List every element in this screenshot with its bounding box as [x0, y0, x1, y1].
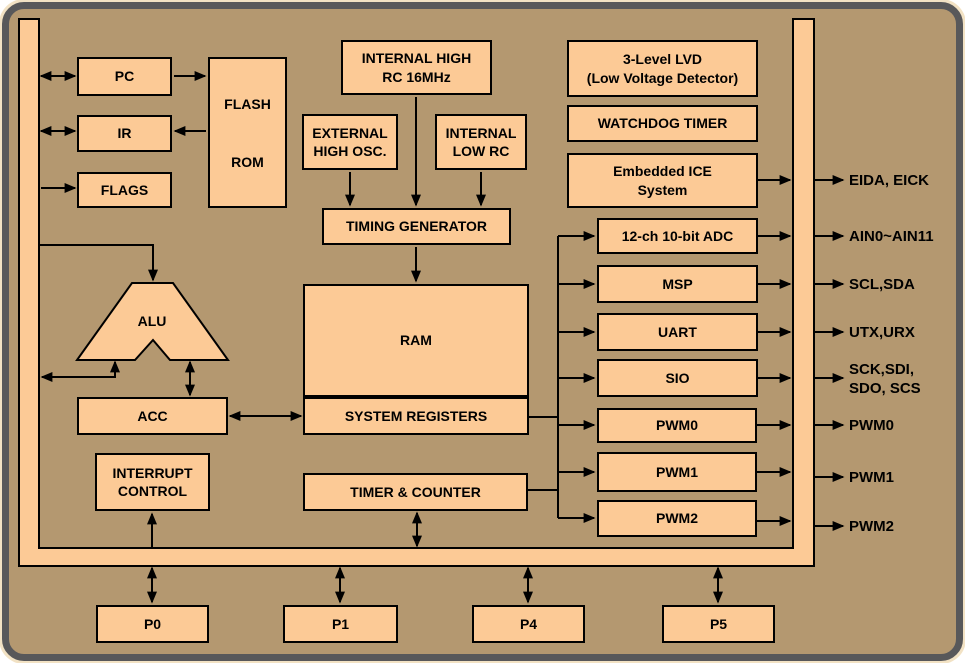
- pin-label-pwm1: PWM1: [849, 468, 894, 487]
- block-ram: RAM: [303, 284, 529, 397]
- block-system-registers: SYSTEM REGISTERS: [303, 397, 529, 435]
- block-watchdog-timer: WATCHDOG TIMER: [567, 105, 758, 142]
- pin-label-utx-urx: UTX,URX: [849, 323, 915, 342]
- block-flags: FLAGS: [77, 172, 172, 208]
- block-pwm1: PWM1: [597, 452, 757, 492]
- block-msp: MSP: [597, 265, 758, 303]
- block-internal-low-rc: INTERNAL LOW RC: [435, 114, 527, 170]
- block-interrupt-control: INTERRUPT CONTROL: [95, 453, 210, 511]
- alu-label: ALU: [117, 313, 187, 329]
- block-lvd: 3-Level LVD (Low Voltage Detector): [567, 40, 758, 97]
- block-adc: 12-ch 10-bit ADC: [597, 218, 758, 254]
- block-embedded-ice: Embedded ICE System: [567, 153, 758, 208]
- pin-label-pwm2: PWM2: [849, 517, 894, 536]
- block-pc: PC: [77, 57, 172, 96]
- block-internal-high-rc: INTERNAL HIGH RC 16MHz: [341, 40, 492, 95]
- pin-label-scl-sda: SCL,SDA: [849, 275, 915, 294]
- block-diagram: PC IR FLAGS FLASH ROM INTERNAL HIGH RC 1…: [0, 0, 965, 663]
- block-port-p0: P0: [96, 605, 209, 643]
- block-flash-rom: FLASH ROM: [208, 57, 287, 208]
- block-ir: IR: [77, 115, 172, 152]
- block-acc: ACC: [77, 397, 228, 435]
- pin-label-ain0-ain11: AIN0~AIN11: [849, 227, 934, 246]
- block-pwm0: PWM0: [597, 408, 757, 443]
- pin-label-sck-sdi-sdo-scs: SCK,SDI, SDO, SCS: [849, 360, 921, 398]
- block-uart: UART: [597, 313, 758, 351]
- pin-label-pwm0: PWM0: [849, 416, 894, 435]
- pin-label-eida-eick: EIDA, EICK: [849, 171, 929, 190]
- block-port-p1: P1: [283, 605, 398, 643]
- block-port-p4: P4: [472, 605, 585, 643]
- block-external-high-osc: EXTERNAL HIGH OSC.: [302, 114, 398, 170]
- block-pwm2: PWM2: [597, 500, 757, 537]
- block-sio: SIO: [597, 359, 758, 397]
- block-timing-generator: TIMING GENERATOR: [322, 208, 511, 245]
- block-port-p5: P5: [662, 605, 775, 643]
- block-timer-counter: TIMER & COUNTER: [303, 473, 528, 511]
